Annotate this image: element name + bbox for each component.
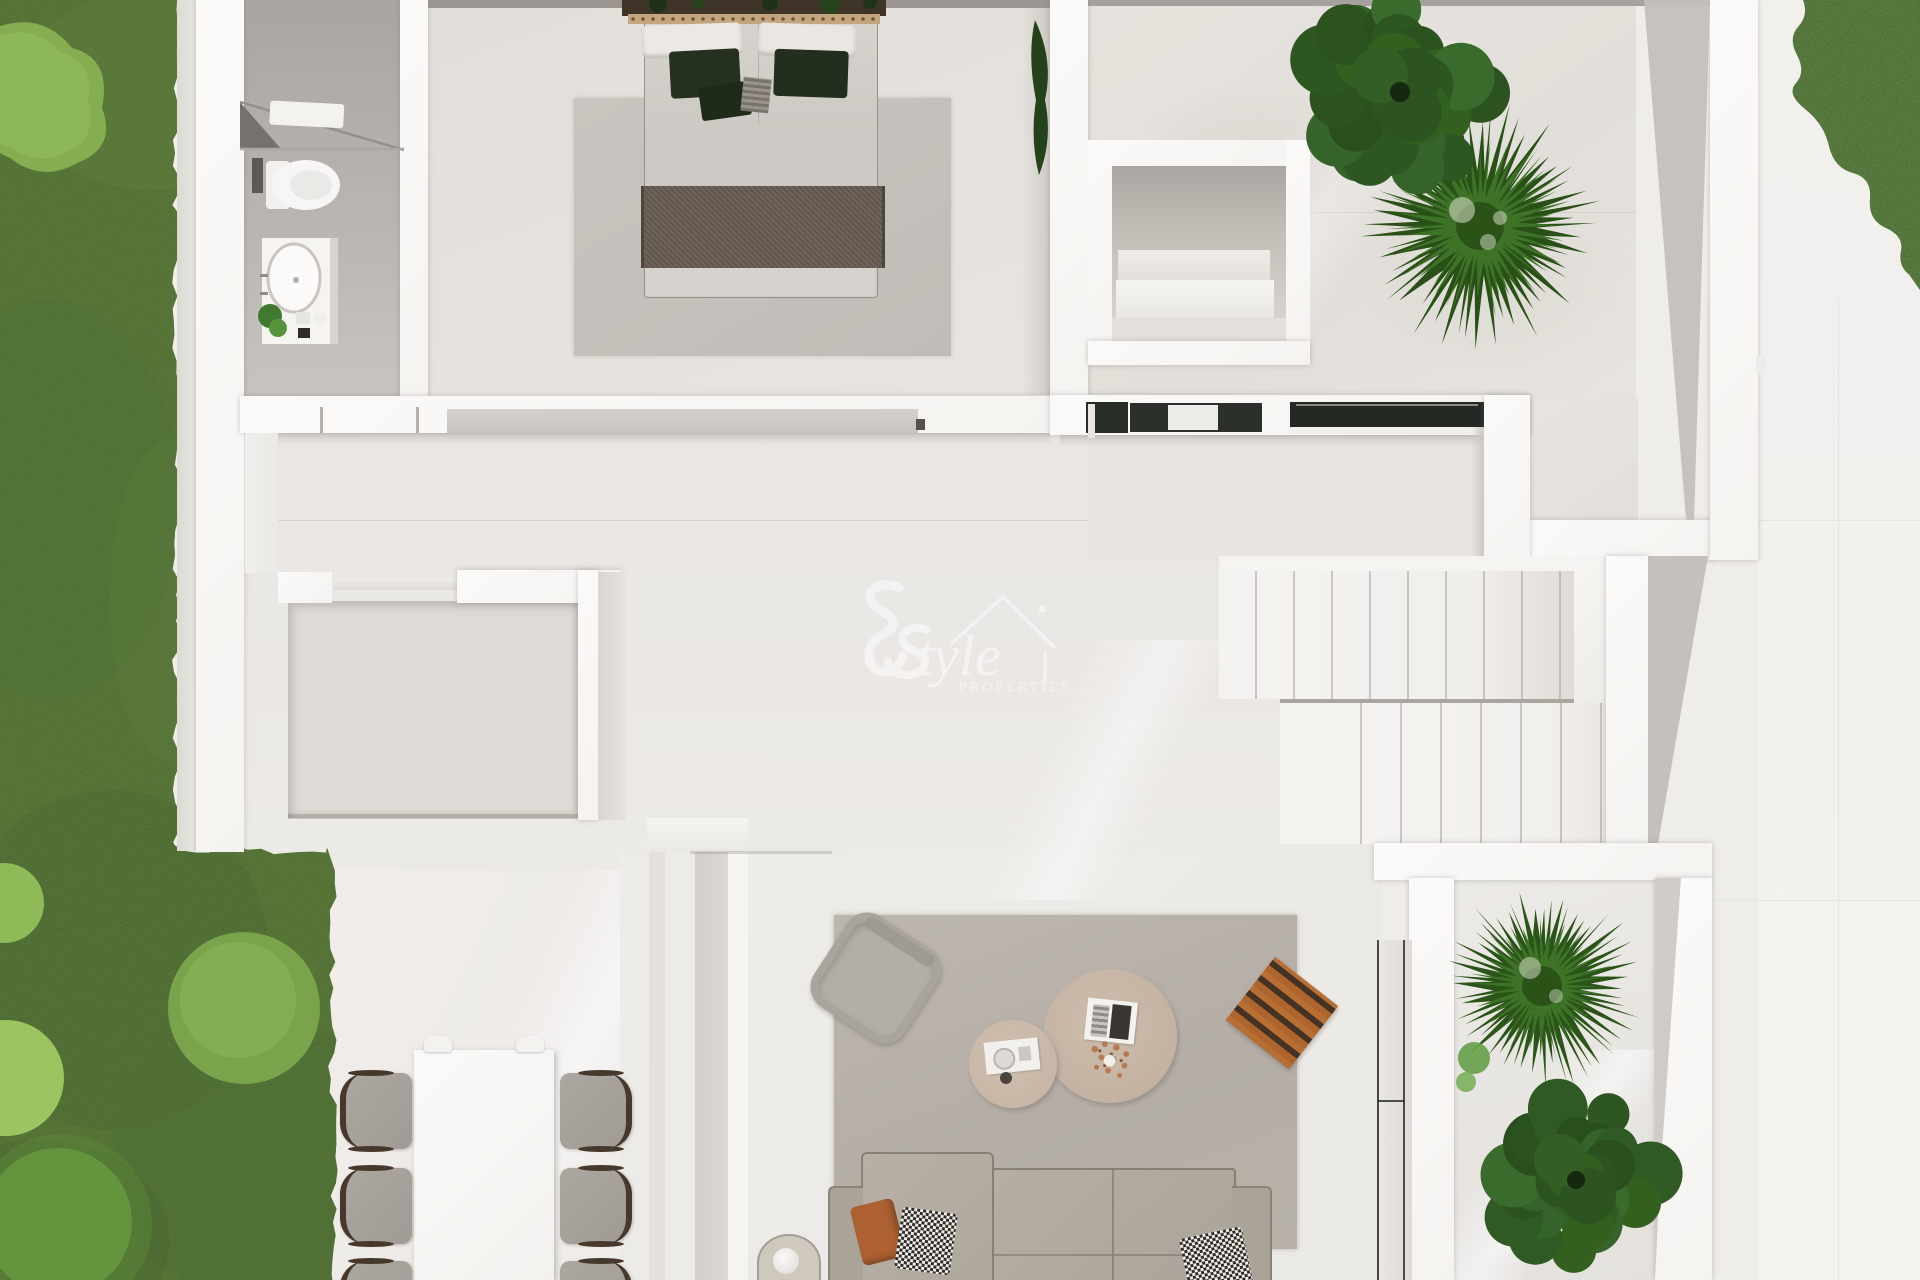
svg-text:PROPERTIES: PROPERTIES [959, 679, 1070, 694]
